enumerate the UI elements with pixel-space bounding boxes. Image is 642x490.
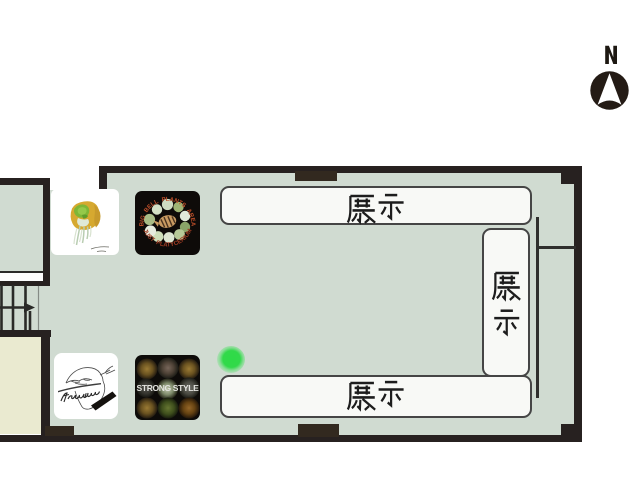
svg-text:STRONG STYLE: STRONG STYLE [137,383,200,393]
